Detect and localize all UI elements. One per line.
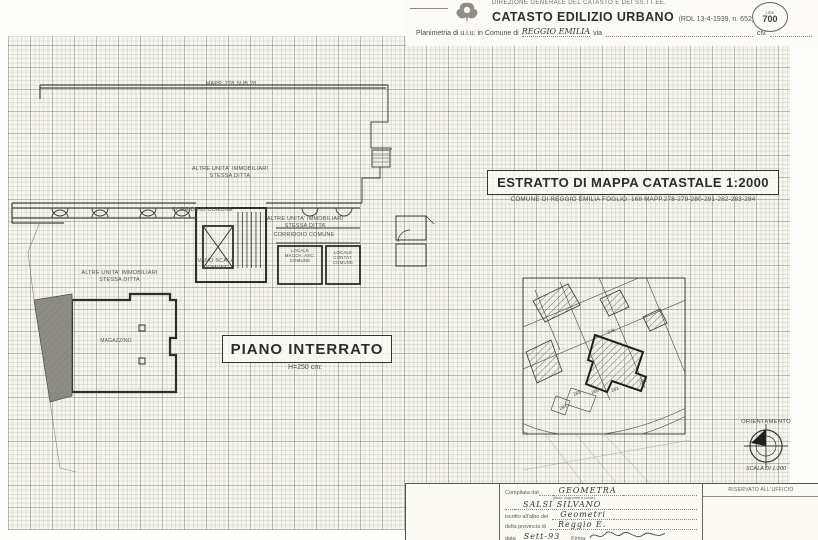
label-corridoio-left: CORRIDOIO COMUNE xyxy=(155,207,250,214)
label-corridoio-right: CORRIDOIO COMUNE xyxy=(258,232,350,239)
data-handwritten-value: Sett-93 xyxy=(519,532,566,540)
plan-map-reference: MAPP. 278 SUB.28 xyxy=(185,81,277,88)
label-line: COMUNE xyxy=(328,260,358,265)
label-magazzino: MAGAZZINO xyxy=(88,338,144,345)
signature-scribble xyxy=(589,529,667,540)
via-blank-line xyxy=(606,28,753,37)
riservato-ufficio-label: RISERVATO ALL'UFFICIO xyxy=(703,484,818,497)
planimetria-line: Planimetria di u.i.u. in Comune di REGGI… xyxy=(416,27,812,37)
label-line: COMUNE xyxy=(185,265,247,272)
label-line: COMUNE xyxy=(280,258,320,263)
via-label: via xyxy=(593,30,602,37)
floor-plan-outline xyxy=(12,85,391,223)
firma-label: Firma xyxy=(571,536,585,540)
label-altre-unita-top: ALTRE UNITA' IMMOBILIARI STESSA DITTA xyxy=(165,166,295,179)
planimetria-label: Planimetria di u.i.u. in Comune di xyxy=(416,30,519,37)
label-vano-scala: VANO SCALA COMUNE xyxy=(185,258,247,271)
map-extract-title-box: ESTRATTO DI MAPPA CATASTALE 1:2000 xyxy=(487,170,779,195)
partial-box-line xyxy=(410,8,448,9)
document-header: DIREZIONE GENERALE DEL CATASTO E DEI SS.… xyxy=(406,0,818,46)
document-title: CATASTO EDILIZIO URBANO (RDL 13-4-1939, … xyxy=(492,8,754,26)
map-extract-drawing: 278 280 281 282 283 284 xyxy=(516,252,700,443)
surveyor-form: Compilata dal GEOMETRA (titolo, cognome … xyxy=(405,483,818,540)
north-compass-icon xyxy=(744,424,788,468)
form-empty-cell xyxy=(406,484,500,540)
map-extract-title: ESTRATTO DI MAPPA CATASTALE 1:2000 xyxy=(497,175,769,190)
subject-building xyxy=(586,335,646,392)
title-text: CATASTO EDILIZIO URBANO xyxy=(492,10,674,24)
form-row-data-firma: data Sett-93 Firma xyxy=(505,530,697,540)
comune-handwritten-value: REGGIO EMILIA xyxy=(522,27,590,37)
form-row-name: SALSI SILVANO xyxy=(505,500,697,510)
scale-label: SCALA DI 1:200 xyxy=(730,466,802,472)
parcel-number: 283 xyxy=(573,389,582,396)
civ-blank-line xyxy=(770,28,812,37)
title-reference: (RDL 13-4-1939, n. 652) xyxy=(679,16,755,23)
civ-label: civ. xyxy=(757,30,767,37)
form-main-cell: Compilata dal GEOMETRA (titolo, cognome … xyxy=(500,484,702,540)
plan-height-note: H=250 cm: xyxy=(240,364,370,371)
label-line: STESSA DITTA xyxy=(62,277,177,284)
label-line: STESSA DITTA xyxy=(255,223,355,230)
data-label: data xyxy=(505,536,516,540)
form-row-albo: iscritto all'albo dei Geometri xyxy=(505,510,697,520)
compilata-handwritten-value: GEOMETRA xyxy=(553,486,623,496)
label-line: STESSA DITTA xyxy=(165,173,295,180)
label-locale-contat: LOCALE CONTAT. COMUNE xyxy=(328,250,358,265)
department-line: DIREZIONE GENERALE DEL CATASTO E DEI SS.… xyxy=(492,0,666,6)
plan-title-box: PIANO INTERRATO xyxy=(222,335,392,363)
scanned-cadastral-document: 278 280 281 282 283 284 DIREZIONE GENERA… xyxy=(0,0,818,540)
label-altre-unita-bottom: ALTRE UNITA' IMMOBILIARI STESSA DITTA xyxy=(62,270,177,283)
name-handwritten-value: SALSI SILVANO xyxy=(515,500,609,510)
parcel-number: 281 xyxy=(611,385,620,392)
label-line: ALTRE UNITA' IMMOBILIARI xyxy=(255,216,355,223)
label-altre-unita-right: ALTRE UNITA' IMMOBILIARI STESSA DITTA xyxy=(255,216,355,229)
stamp-value: 700 xyxy=(762,15,777,24)
form-row-compilata: Compilata dal GEOMETRA xyxy=(505,486,697,496)
plan-title: PIANO INTERRATO xyxy=(231,341,384,358)
form-office-cell: RISERVATO ALL'UFFICIO xyxy=(702,484,818,540)
orientation-label: ORIENTAMENTO xyxy=(730,419,802,425)
catasto-crest-icon xyxy=(454,1,480,25)
map-extract-subtitle: COMUNE DI REGGIO EMILIA FOGLIO: 168 MAPP… xyxy=(483,196,783,203)
label-locale-macch: LOCALE MACCH. ASC. COMUNE xyxy=(280,248,320,263)
parcel-number: 278 xyxy=(607,327,616,334)
albo-handwritten-value: Geometri xyxy=(552,510,614,520)
magazzino-room xyxy=(28,222,176,472)
